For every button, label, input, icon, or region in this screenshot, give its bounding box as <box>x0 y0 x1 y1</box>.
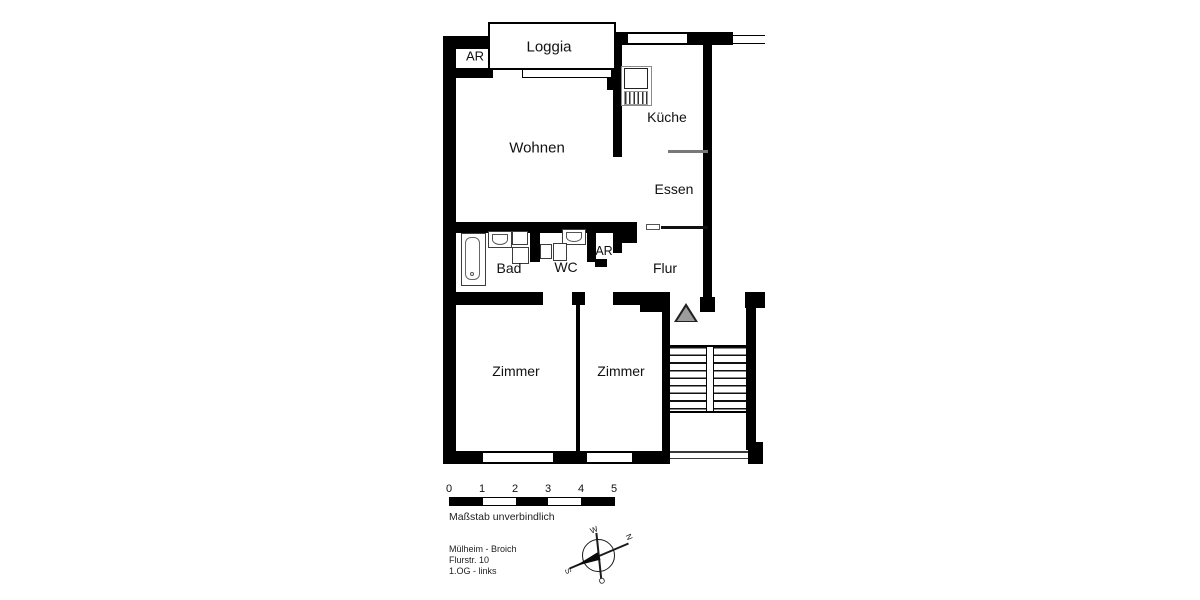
kitchen-counter-line <box>668 150 708 153</box>
wall-bottom-b <box>553 451 587 464</box>
window-bedroom-left <box>483 451 553 464</box>
scale-bar-seg-4 <box>548 498 581 505</box>
room-label-bad: Bad <box>497 260 522 276</box>
scale-tick-2: 2 <box>512 483 518 495</box>
scale-bar-seg-3 <box>516 498 549 505</box>
entrance-triangle-icon <box>677 307 695 321</box>
stairwell-landing-line-2 <box>670 458 748 460</box>
wall-room-divider <box>576 305 580 452</box>
dining-hall-partition <box>661 226 708 229</box>
room-label-wohnen: Wohnen <box>509 140 565 157</box>
scale-caption: Maßstab unverbindlich <box>449 511 555 523</box>
wall-bottom-c <box>632 451 666 464</box>
scale-tick-1: 1 <box>479 483 485 495</box>
scale-tick-5: 5 <box>611 483 617 495</box>
bath-washbasin-bowl <box>492 234 508 245</box>
floorplan-canvas: Loggia AR Wohnen Küche Essen Bad WC AR F… <box>0 0 1200 600</box>
wall-bath-wc <box>530 222 540 262</box>
wc-washbasin-bowl <box>566 232 582 242</box>
scale-tick-4: 4 <box>578 483 584 495</box>
room-label-zimmer-right: Zimmer <box>597 363 644 379</box>
compass-label-north: N <box>624 533 635 542</box>
stairs-right-flight <box>714 347 746 411</box>
scale-tick-3: 3 <box>545 483 551 495</box>
wall-bath-south <box>456 292 543 305</box>
room-label-essen: Essen <box>655 181 694 197</box>
window-kitchen-top <box>628 32 687 45</box>
wall-ar-east-upper <box>613 233 637 243</box>
wall-hall-stairwell <box>703 36 712 298</box>
scale-bar <box>449 497 615 506</box>
stairs-stringer <box>706 347 714 411</box>
wall-middle-horizontal <box>443 222 637 233</box>
scale-bar-seg-5 <box>581 498 614 505</box>
wall-left-exterior <box>443 36 456 464</box>
window-bedroom-right <box>587 451 632 464</box>
wall-top-above-ar <box>443 36 488 49</box>
room-label-kueche: Küche <box>647 109 687 125</box>
wall-stairwell-east-bottom <box>748 442 763 464</box>
room-label-wc: WC <box>554 259 577 275</box>
stairs-left-flight <box>670 347 706 411</box>
loggia-window-sill <box>522 69 612 78</box>
address-line-street: Flurstr. 10 <box>449 555 517 566</box>
room-label-flur: Flur <box>653 260 677 276</box>
stairwell-landing-line-1 <box>670 451 748 453</box>
window-stairwell-top <box>733 35 765 44</box>
wall-bottom-a <box>443 451 483 464</box>
stairs-icon <box>670 345 746 413</box>
compass-label-south: S <box>563 567 573 576</box>
wall-entrance-stub <box>700 297 715 312</box>
dining-hall-door-leaf <box>646 224 660 230</box>
address-line-floor: 1.OG - links <box>449 566 517 577</box>
scale-tick-0: 0 <box>446 483 452 495</box>
stove-hatch <box>624 91 648 105</box>
wall-wc-ar-block <box>595 259 607 267</box>
compass-label-east: O <box>597 576 606 587</box>
wall-stairwell-west <box>662 297 670 464</box>
wall-stairwell-east <box>746 292 756 450</box>
wall-below-ar <box>443 68 493 78</box>
compass-label-west: W <box>589 524 599 535</box>
address-line-city: Mülheim - Broich <box>449 544 517 555</box>
stove-top-panel <box>624 68 648 89</box>
room-label-ar-mid: AR <box>595 244 612 258</box>
wc-toilet-tank-icon <box>540 244 552 259</box>
room-label-ar-top: AR <box>466 49 484 64</box>
address-block: Mülheim - Broich Flurstr. 10 1.OG - link… <box>449 544 517 577</box>
bath-cistern-icon <box>512 231 528 245</box>
wall-ar-east-lower <box>613 243 622 253</box>
scale-bar-seg-2 <box>483 498 516 505</box>
bathtub-drain <box>470 272 474 276</box>
wall-room-door-header <box>572 292 585 305</box>
room-label-loggia: Loggia <box>526 39 571 56</box>
room-label-zimmer-left: Zimmer <box>492 363 539 379</box>
scale-bar-seg-1 <box>450 498 483 505</box>
